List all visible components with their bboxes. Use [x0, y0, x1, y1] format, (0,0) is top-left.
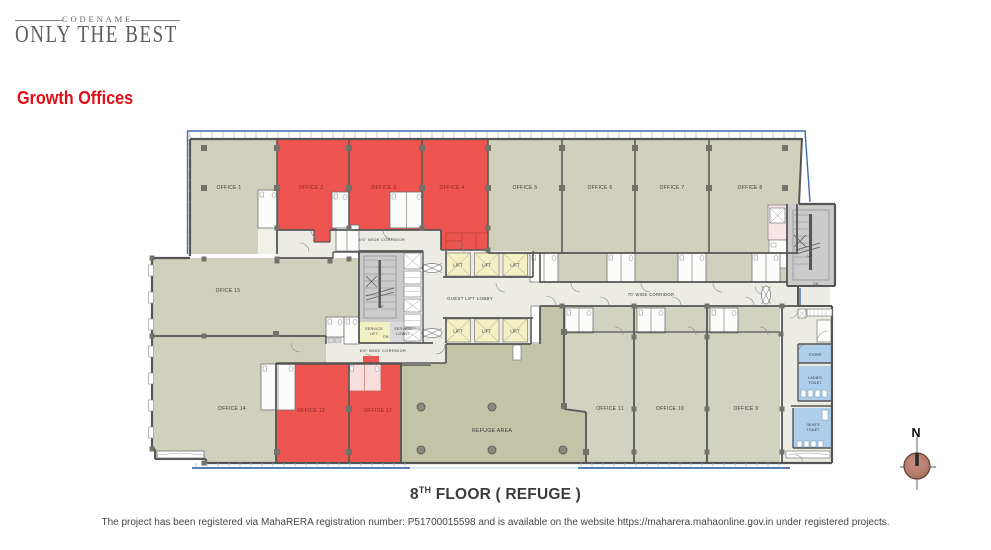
svg-text:TOILET: TOILET	[806, 428, 820, 432]
svg-text:6'6" WIDE CORRIDOR: 6'6" WIDE CORRIDOR	[360, 348, 406, 353]
svg-text:LIFT: LIFT	[510, 263, 520, 268]
svg-text:OFFICE 6: OFFICE 6	[588, 185, 613, 191]
svg-text:REFUGE AREA: REFUGE AREA	[472, 428, 512, 434]
svg-text:OFFICE 8: OFFICE 8	[738, 185, 763, 191]
svg-text:LIFT: LIFT	[482, 329, 492, 334]
svg-text:OFFICE 1: OFFICE 1	[217, 185, 242, 191]
svg-text:OFFICE 4: OFFICE 4	[440, 185, 465, 191]
svg-text:GENTS: GENTS	[806, 423, 820, 427]
svg-text:N: N	[911, 426, 920, 440]
svg-text:DN: DN	[383, 335, 389, 339]
svg-text:OFICE 15: OFICE 15	[216, 288, 241, 294]
svg-text:OFFICE 13: OFFICE 13	[297, 408, 325, 414]
svg-text:SERVICE: SERVICE	[394, 327, 412, 331]
svg-text:LIFT: LIFT	[453, 329, 463, 334]
svg-text:LIFT: LIFT	[482, 263, 492, 268]
svg-text:70' WIDE CORRIDOR: 70' WIDE CORRIDOR	[628, 292, 675, 297]
svg-text:OFFICE 2: OFFICE 2	[299, 185, 324, 191]
svg-text:LIFT: LIFT	[453, 263, 463, 268]
svg-text:OFFICE 12: OFFICE 12	[364, 408, 392, 414]
svg-text:OFFICE 5: OFFICE 5	[513, 185, 538, 191]
svg-text:SERVICE: SERVICE	[365, 327, 383, 331]
svg-text:STORE: STORE	[808, 353, 821, 357]
svg-text:DN: DN	[813, 282, 819, 286]
svg-text:6'6" WIDE CORRIDOR: 6'6" WIDE CORRIDOR	[359, 237, 405, 242]
svg-text:OFFICE 10: OFFICE 10	[656, 406, 684, 412]
svg-text:GUEST LIFT LOBBY: GUEST LIFT LOBBY	[447, 296, 493, 301]
svg-text:LIFT: LIFT	[510, 329, 520, 334]
svg-text:LADIES: LADIES	[808, 376, 822, 380]
svg-text:UP: UP	[807, 254, 813, 258]
svg-text:UP: UP	[378, 305, 384, 309]
svg-text:OFFICE 9: OFFICE 9	[734, 406, 759, 412]
svg-text:OFFICE 11: OFFICE 11	[596, 406, 624, 412]
svg-text:LOBBY: LOBBY	[396, 332, 410, 336]
svg-text:TOILET: TOILET	[808, 381, 822, 385]
svg-text:OFFICE 14: OFFICE 14	[218, 406, 246, 412]
svg-text:LIFT: LIFT	[370, 332, 379, 336]
svg-text:OFFICE 7: OFFICE 7	[660, 185, 685, 191]
svg-text:OFFICE 3: OFFICE 3	[372, 185, 397, 191]
